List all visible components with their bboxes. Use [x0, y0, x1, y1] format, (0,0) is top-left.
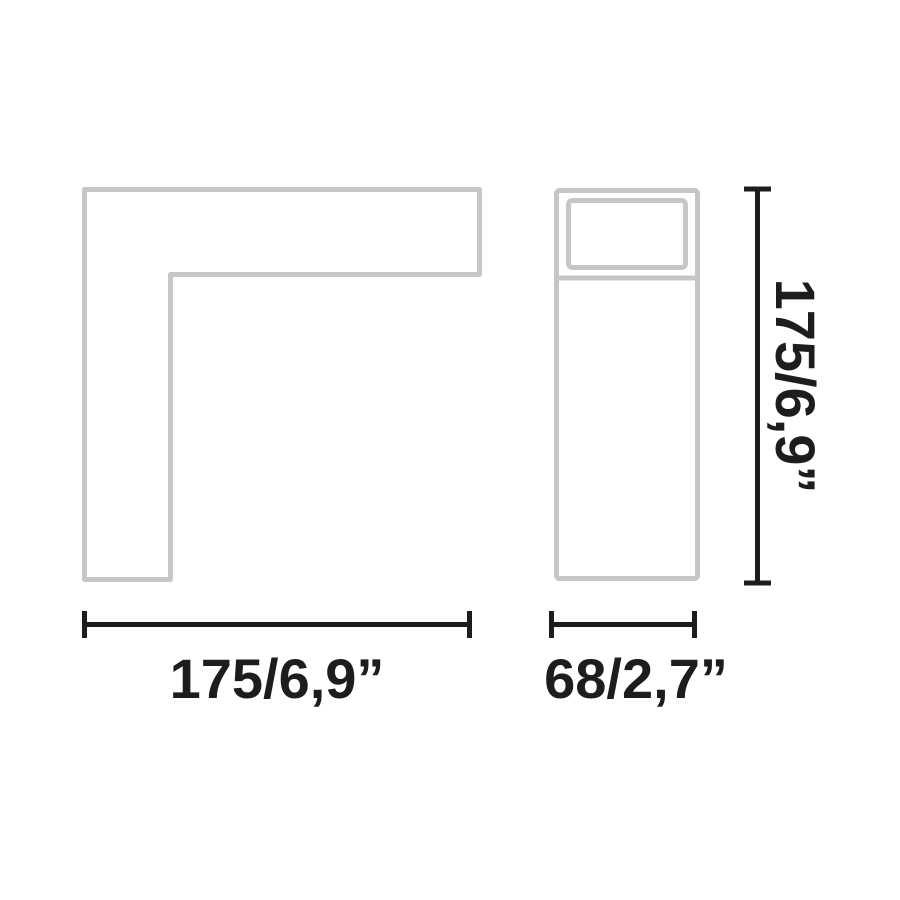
height-dimension-label: 175/6,9” [767, 236, 823, 536]
front-width-dimension-label: 175/6,9” [84, 651, 470, 707]
side-width-dimension-line [552, 611, 695, 638]
front-width-dimension-line [85, 611, 470, 638]
dimension-diagram: 175/6,9” 68/2,7” 175/6,9” [0, 0, 900, 900]
side-width-dimension-label: 68/2,7” [536, 651, 736, 707]
front-view-outline [85, 190, 480, 580]
side-view-top-panel [569, 201, 686, 268]
